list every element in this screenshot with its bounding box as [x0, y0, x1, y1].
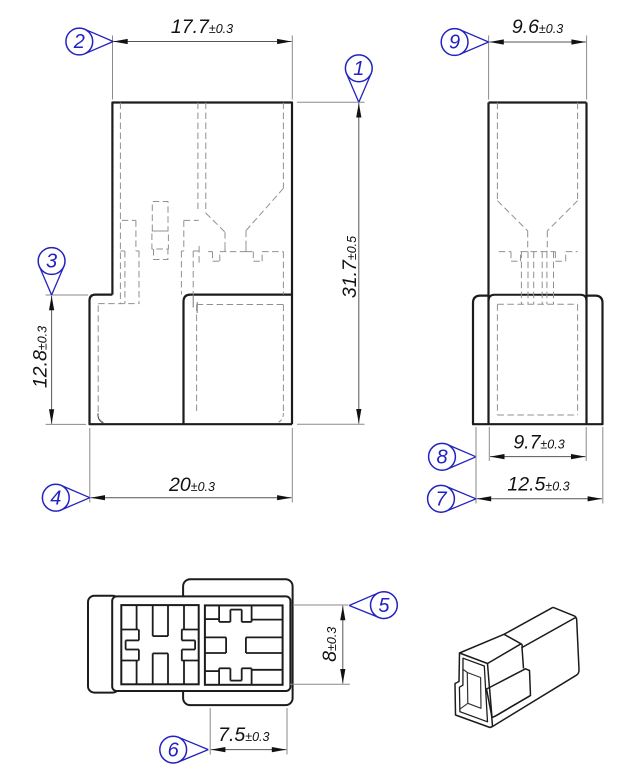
- svg-text:2: 2: [73, 31, 85, 53]
- svg-text:3: 3: [46, 251, 57, 273]
- svg-text:5: 5: [378, 595, 390, 617]
- svg-text:7: 7: [435, 489, 447, 511]
- svg-text:1: 1: [353, 58, 364, 80]
- svg-text:8: 8: [436, 447, 447, 469]
- svg-text:4: 4: [50, 487, 61, 509]
- svg-text:9: 9: [449, 32, 460, 54]
- svg-text:6: 6: [168, 739, 180, 761]
